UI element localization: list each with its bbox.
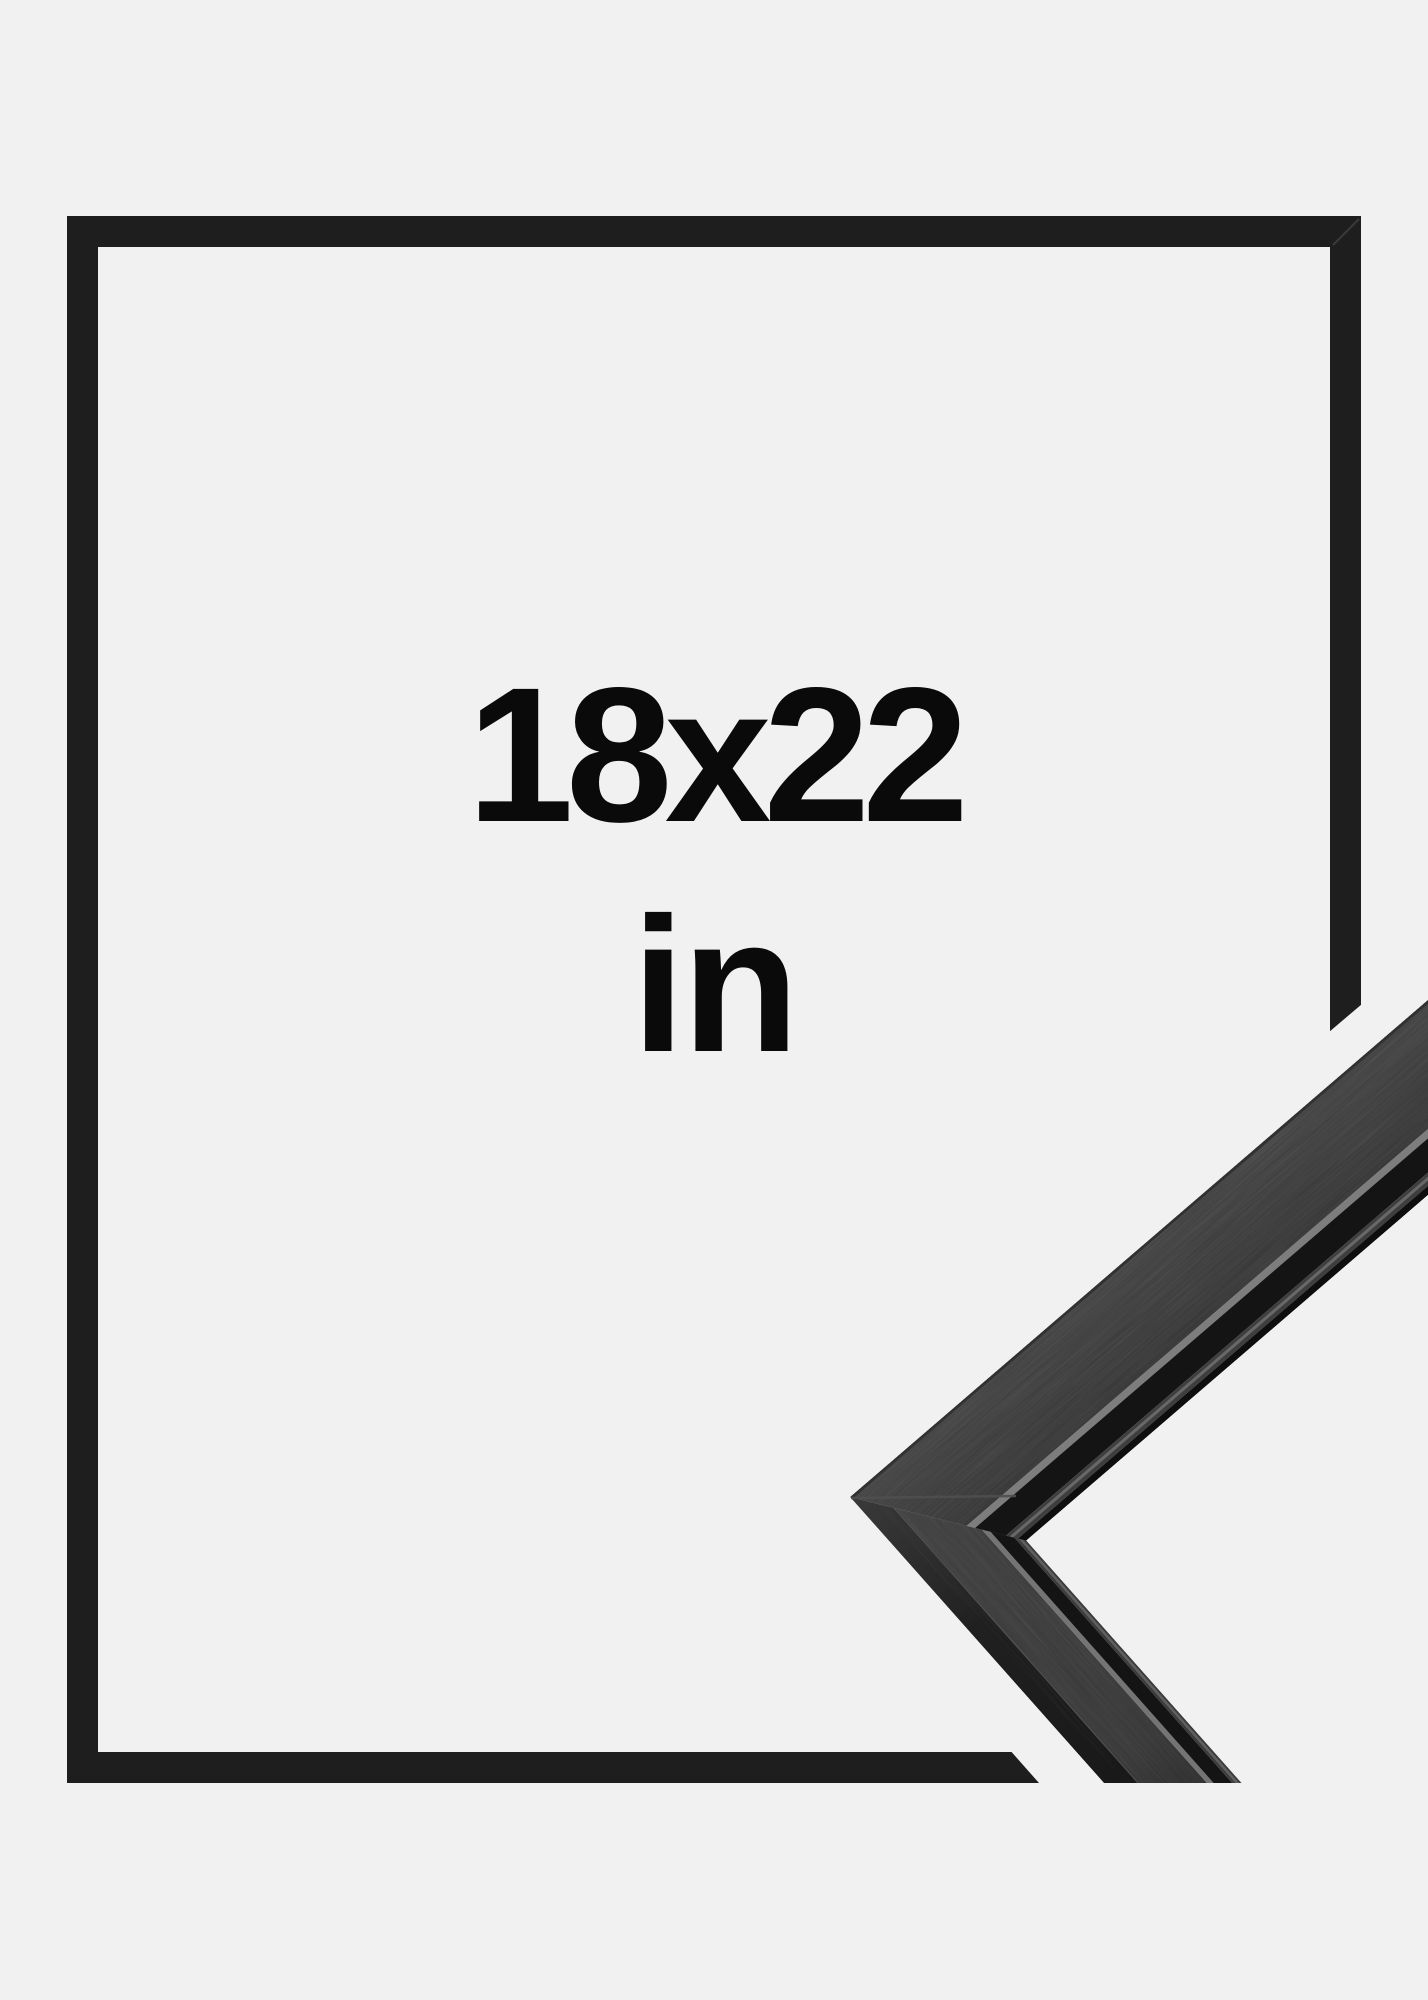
size-text-block: 18x22 in xyxy=(0,640,1428,1100)
unit-label: in xyxy=(0,870,1428,1100)
size-label: 18x22 xyxy=(0,640,1428,870)
frame-product-image: 18x22 in xyxy=(0,0,1428,2000)
